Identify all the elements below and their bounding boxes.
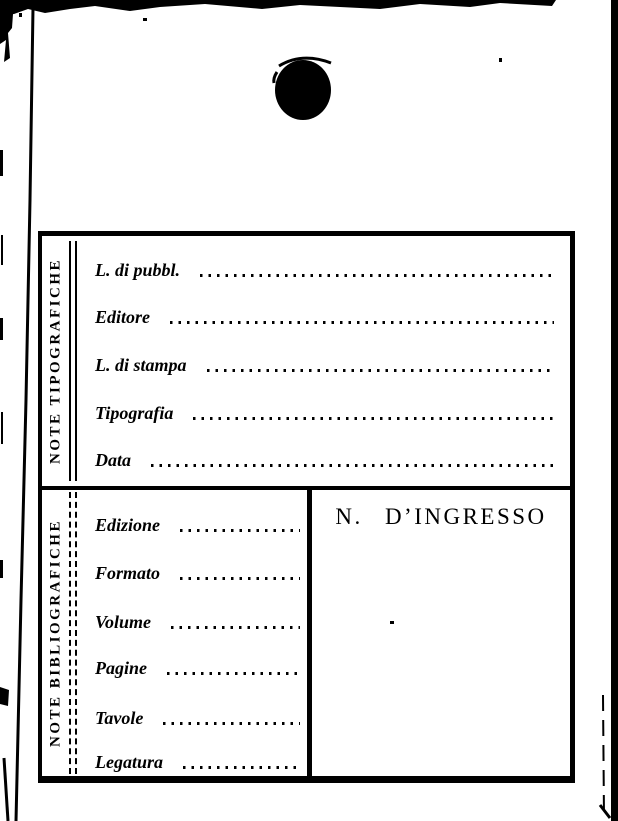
scan-tick: [0, 560, 3, 578]
field-row-edizione: Edizione: [95, 514, 300, 536]
field-label: Edizione: [95, 514, 160, 536]
field-dotted-line: [193, 417, 554, 420]
scan-tick: [0, 318, 3, 340]
field-dotted-line: [167, 672, 300, 675]
scan-tick: [1, 235, 3, 265]
field-row-legatura: Legatura: [95, 751, 300, 773]
scan-tick: [1, 412, 3, 444]
field-label: L. di stampa: [95, 354, 187, 376]
broken-rule: [69, 492, 77, 774]
scan-mark-bottom-right: [600, 805, 610, 818]
field-row-pagine: Pagine: [95, 657, 300, 679]
field-dotted-line: [151, 464, 554, 467]
field-label: Legatura: [95, 751, 163, 773]
scan-line-right: [603, 695, 604, 818]
catalog-card-table: NOTE TIPOGRAFICHE L. di pubbl. Editore L…: [38, 231, 575, 783]
double-rule: [69, 241, 77, 481]
field-row-l-di-pubbl: L. di pubbl.: [95, 259, 554, 281]
scan-blotch-bottom-left: [0, 687, 9, 706]
ink-speck: [499, 58, 502, 62]
ingresso-cell: N. D’INGRESSO: [312, 490, 570, 776]
ink-speck: [19, 13, 22, 17]
field-row-editore: Editore: [95, 306, 554, 328]
ingresso-heading: N. D’INGRESSO: [312, 504, 570, 530]
field-dotted-line: [207, 369, 554, 372]
scan-edge-top: [0, 0, 556, 16]
side-label-note-tipografiche: NOTE TIPOGRAFICHE: [47, 258, 64, 464]
side-label-note-bibliografiche: NOTE BIBLIOGRAFICHE: [47, 519, 64, 747]
field-row-formato: Formato: [95, 562, 300, 584]
scanned-catalog-card-page: NOTE TIPOGRAFICHE L. di pubbl. Editore L…: [0, 0, 618, 821]
field-row-tavole: Tavole: [95, 707, 300, 729]
field-label: Pagine: [95, 657, 147, 679]
field-label: Volume: [95, 611, 151, 633]
ink-speck: [143, 18, 147, 21]
section-note-bibliografiche: NOTE BIBLIOGRAFICHE Edizione Formato Vol…: [42, 490, 570, 776]
hole-punch-arc: [279, 58, 331, 66]
side-label-column: NOTE TIPOGRAFICHE: [42, 236, 69, 486]
field-dotted-line: [180, 577, 300, 580]
scan-tick: [0, 150, 3, 176]
hole-punch: [275, 60, 331, 120]
field-dotted-line: [183, 766, 300, 769]
field-dotted-line: [163, 722, 300, 725]
scan-blotch-top-left: [0, 0, 14, 62]
side-label-column: NOTE BIBLIOGRAFICHE: [42, 490, 69, 776]
field-label: L. di pubbl.: [95, 259, 180, 281]
field-label: Data: [95, 449, 131, 471]
field-row-l-di-stampa: L. di stampa: [95, 354, 554, 376]
scan-line-bottom-left: [4, 758, 8, 821]
field-dotted-line: [171, 626, 300, 629]
scan-edge-right: [611, 0, 618, 821]
field-row-data: Data: [95, 449, 554, 471]
field-label: Tipografia: [95, 402, 173, 424]
card-left-edge-line: [16, 8, 33, 821]
field-row-volume: Volume: [95, 611, 300, 633]
field-row-tipografia: Tipografia: [95, 402, 554, 424]
field-dotted-line: [200, 274, 554, 277]
field-label: Tavole: [95, 707, 143, 729]
field-label: Formato: [95, 562, 160, 584]
section-note-tipografiche: NOTE TIPOGRAFICHE L. di pubbl. Editore L…: [42, 236, 570, 486]
hole-punch-arc-small: [274, 72, 277, 83]
field-dotted-line: [180, 529, 300, 532]
field-label: Editore: [95, 306, 150, 328]
field-dotted-line: [170, 321, 554, 324]
